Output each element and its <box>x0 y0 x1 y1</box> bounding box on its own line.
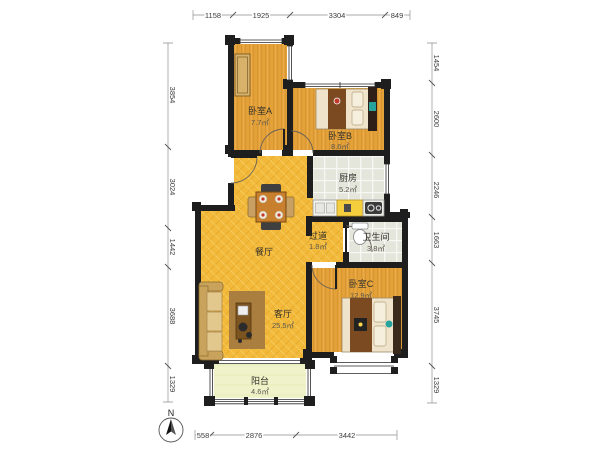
dim-top-2: 1925 <box>253 11 270 20</box>
room-area-hallway: 1.8㎡ <box>309 242 327 251</box>
dim-bottom-2: 2876 <box>246 431 263 440</box>
room-label-bedroom-a: 卧室A <box>248 105 272 116</box>
window-bedroom-a-top <box>240 38 282 44</box>
dim-left-4: 3688 <box>168 308 177 325</box>
kitchen-counter-icon <box>313 200 384 216</box>
window-kitchen-right <box>384 164 390 194</box>
sliding-door-living-balcony <box>219 361 300 364</box>
dim-bottom-3: 3442 <box>339 431 356 440</box>
room-area-kitchen: 5.2㎡ <box>339 185 357 194</box>
dim-top-3: 3304 <box>329 11 346 20</box>
floor-plan-page: 卧室A 7.7㎡ 卧室B 8.6㎡ 厨房 5.2㎡ 过道 1.8㎡ 卫生间 3.… <box>0 0 600 450</box>
room-area-bedroom-c: 12.9㎡ <box>350 291 373 300</box>
room-label-balcony: 阳台 <box>251 375 269 386</box>
dim-right-4: 1663 <box>432 232 441 249</box>
dim-bottom-1: 558 <box>197 431 210 440</box>
room-area-bathroom: 3.8㎡ <box>367 244 385 253</box>
window-bedroom-a-right <box>287 46 293 80</box>
room-label-bedroom-c: 卧室C <box>349 278 374 289</box>
rug-coffee-table-icon <box>229 291 265 349</box>
room-area-bedroom-a: 7.7㎡ <box>251 118 269 127</box>
room-label-bedroom-b: 卧室B <box>328 130 352 141</box>
dim-left-2: 3024 <box>168 179 177 196</box>
bed-icon-bedroom-b <box>316 87 377 131</box>
dim-right-5: 3745 <box>432 307 441 324</box>
dim-top-4: 849 <box>391 11 404 20</box>
dim-left-5: 1329 <box>168 376 177 393</box>
room-area-balcony: 4.6㎡ <box>251 387 269 396</box>
compass-icon: N <box>159 408 183 442</box>
room-label-hallway: 过道 <box>309 230 327 241</box>
bay-window-bedroom-c <box>330 356 398 374</box>
window-bedroom-b-top <box>305 82 375 88</box>
room-label-living: 客厅 <box>274 308 292 319</box>
dim-left-3: 1442 <box>168 239 177 256</box>
dim-right-3: 2246 <box>432 182 441 199</box>
room-label-bathroom: 卫生间 <box>362 231 389 242</box>
compass-north-label: N <box>168 408 175 418</box>
room-label-kitchen: 厨房 <box>339 172 357 183</box>
dim-top-1: 1158 <box>205 11 221 20</box>
bed-icon-bedroom-c <box>342 296 401 354</box>
dim-left-1: 3854 <box>168 87 177 104</box>
room-area-bedroom-b: 8.6㎡ <box>331 142 349 151</box>
room-label-dining: 餐厅 <box>255 246 273 257</box>
floor-plan-drawing: 卧室A 7.7㎡ 卧室B 8.6㎡ 厨房 5.2㎡ 过道 1.8㎡ 卫生间 3.… <box>0 0 600 450</box>
dim-right-6: 1329 <box>432 377 441 394</box>
dim-right-2: 2600 <box>432 111 441 128</box>
wardrobe-icon <box>235 54 250 96</box>
room-area-living: 25.5㎡ <box>272 321 295 330</box>
dim-right-1: 1454 <box>432 55 441 72</box>
sofa-icon <box>199 282 223 360</box>
